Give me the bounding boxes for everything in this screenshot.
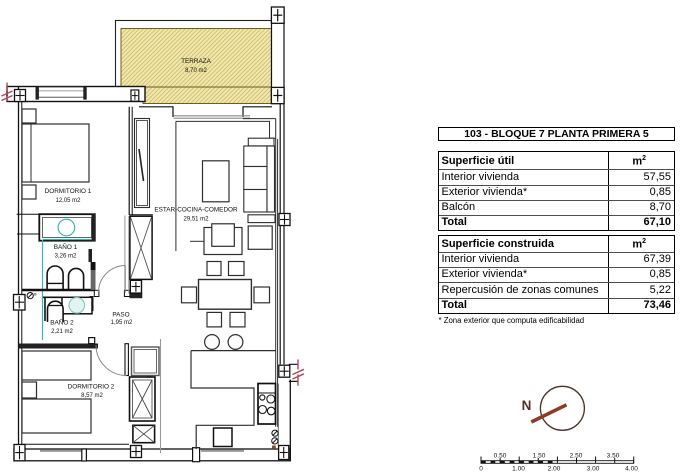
svg-text:1.00: 1.00 [512,466,525,472]
svg-text:8,57 m2: 8,57 m2 [81,393,103,399]
svg-text:12,05 m2: 12,05 m2 [55,198,81,204]
svg-text:2,21 m2: 2,21 m2 [51,329,73,335]
svg-text:BAÑO 1: BAÑO 1 [54,242,78,251]
svg-text:PASO: PASO [112,312,129,319]
svg-text:29,51 m2: 29,51 m2 [183,217,209,223]
svg-text:0: 0 [479,466,483,472]
svg-text:4.00: 4.00 [625,466,638,472]
svg-text:1,95 m2: 1,95 m2 [111,320,133,326]
svg-text:N: N [522,398,532,413]
svg-text:1.50: 1.50 [533,453,546,460]
svg-text:3,26 m2: 3,26 m2 [55,254,77,260]
svg-text:3.00: 3.00 [587,466,600,472]
svg-text:3.50: 3.50 [607,453,620,460]
svg-text:DORMITORIO 1: DORMITORIO 1 [45,188,92,195]
svg-text:0.50: 0.50 [494,453,507,460]
svg-text:8,70 m2: 8,70 m2 [185,68,207,74]
svg-text:2.50: 2.50 [570,453,583,460]
svg-text:2.00: 2.00 [548,466,561,472]
svg-text:DORMITORIO 2: DORMITORIO 2 [68,384,115,391]
svg-text:ESTAR-COCINA-COMEDOR: ESTAR-COCINA-COMEDOR [154,207,238,214]
svg-text:BAÑO 2: BAÑO 2 [50,318,74,327]
svg-text:TERRAZA: TERRAZA [181,58,212,65]
